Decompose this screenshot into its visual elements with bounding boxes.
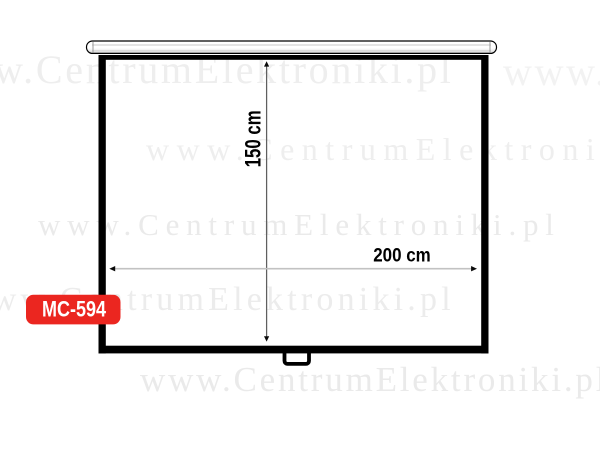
svg-text:200 cm: 200 cm [373, 245, 431, 266]
svg-text:MC-594: MC-594 [42, 297, 107, 322]
svg-text:150 cm: 150 cm [240, 110, 265, 167]
